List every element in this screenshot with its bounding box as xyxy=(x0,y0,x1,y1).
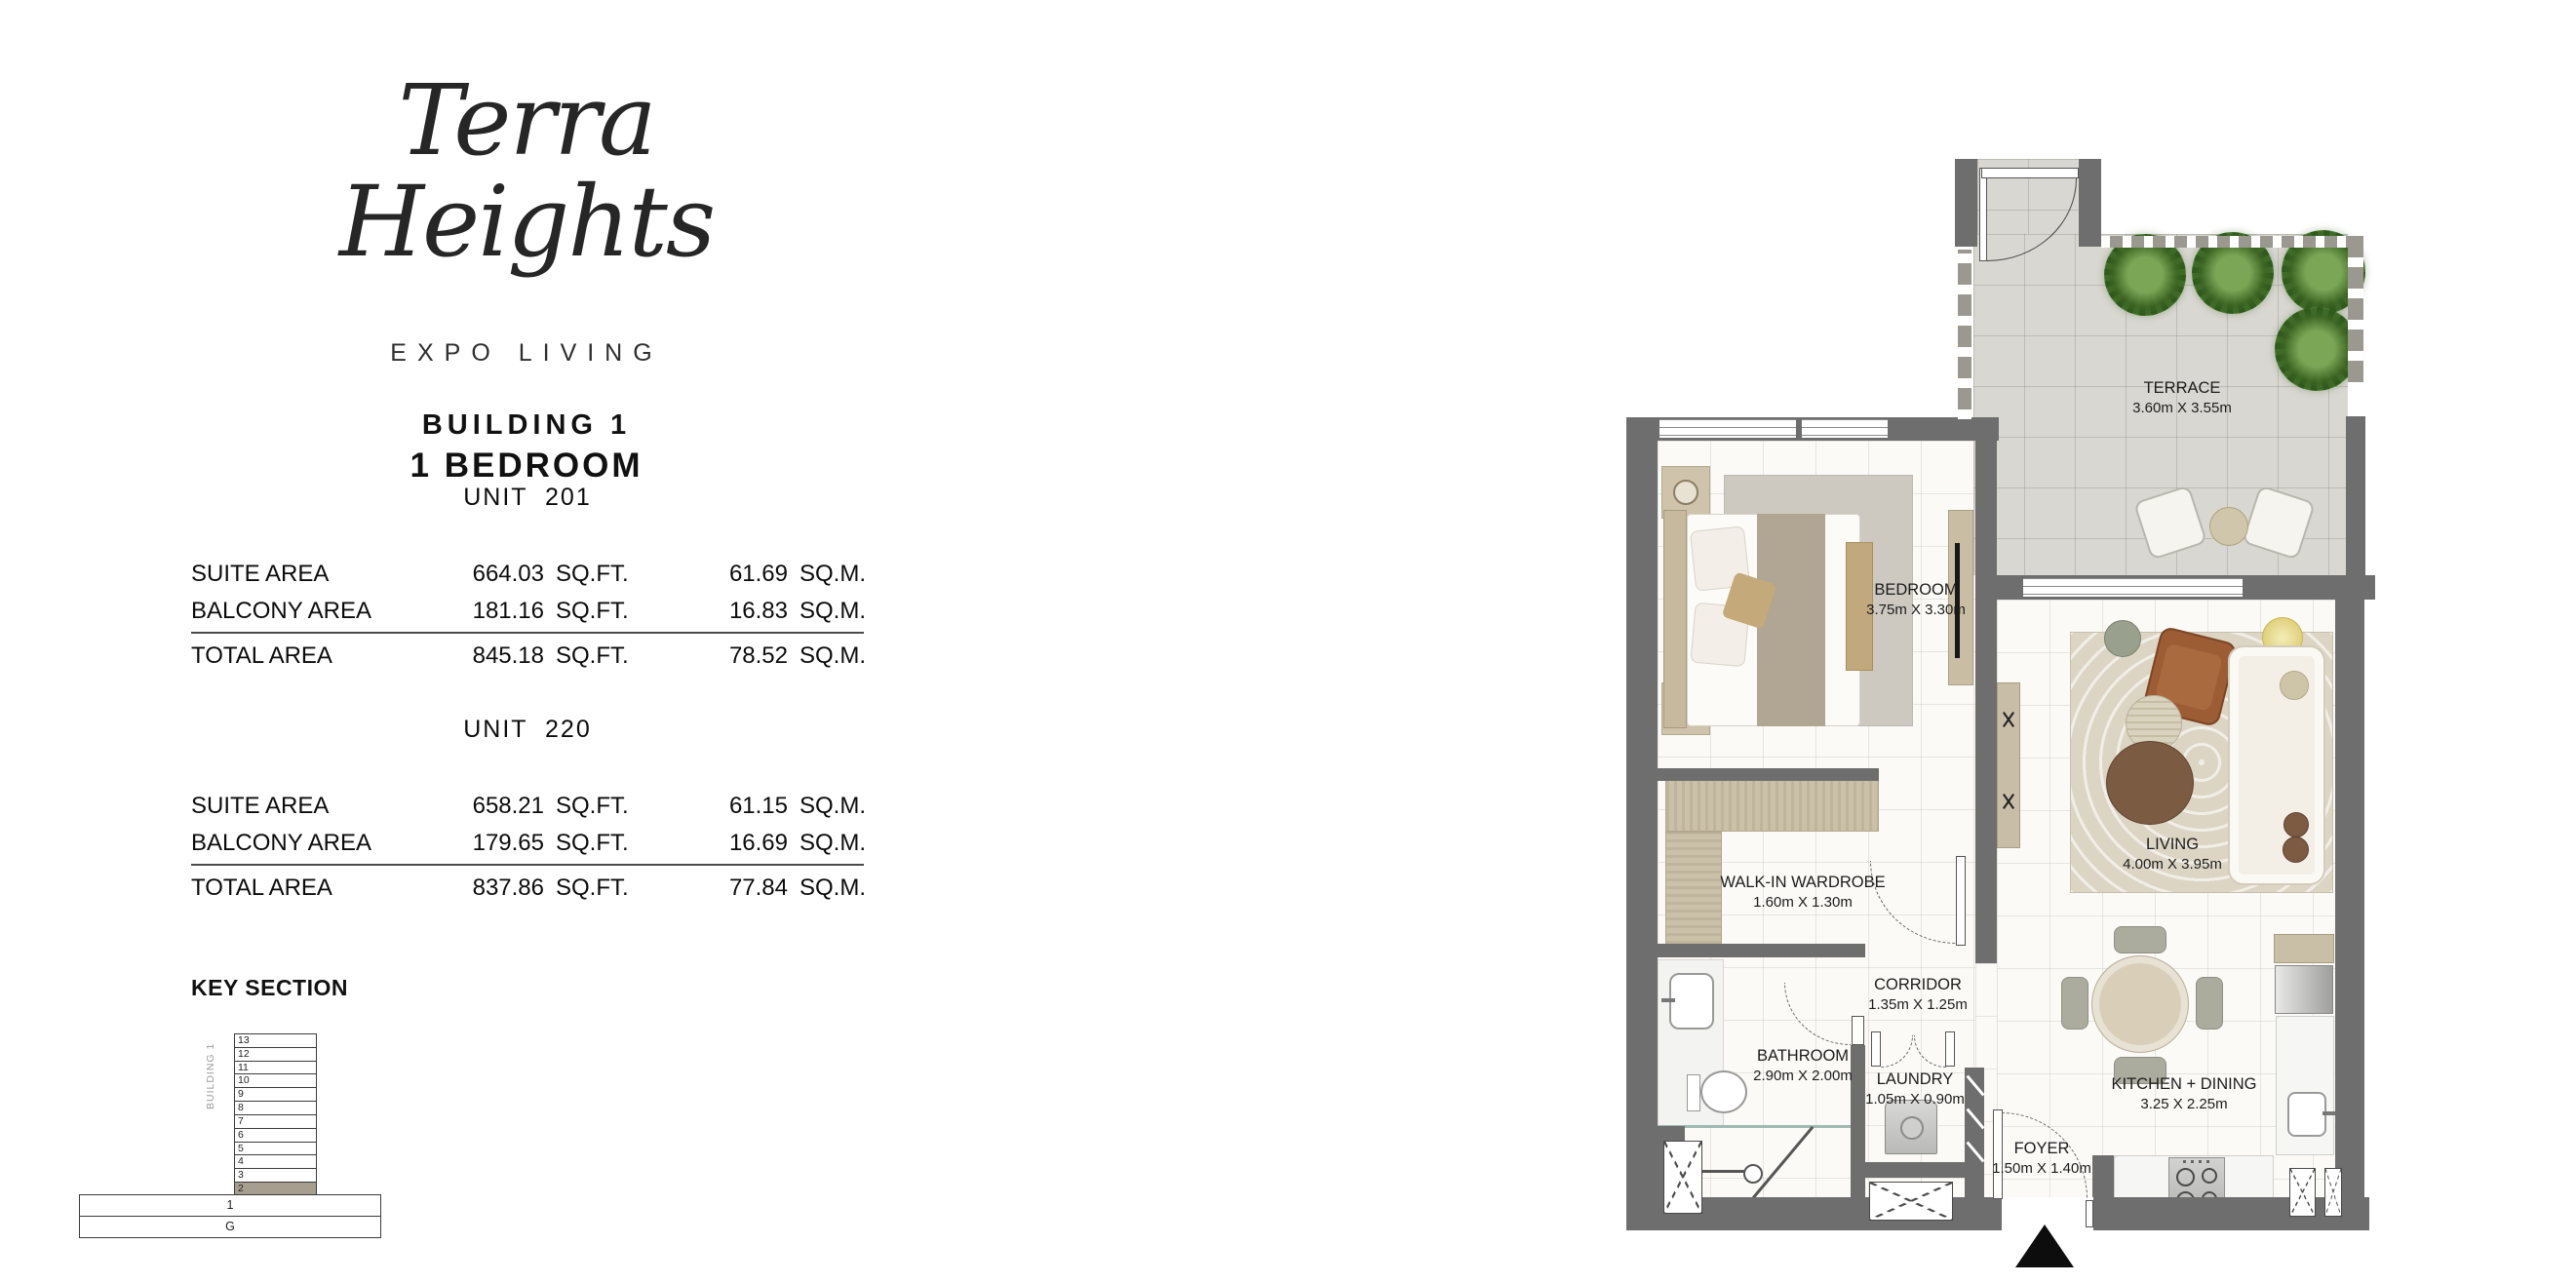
entrance-arrow-icon xyxy=(2015,1225,2074,1267)
terrace-trellis xyxy=(1958,250,1971,419)
fridge xyxy=(2275,965,2333,1014)
wardrobe-counter xyxy=(1665,780,1879,832)
door-frame xyxy=(1979,168,1987,261)
terrace-door-leaf xyxy=(1981,168,2079,178)
room-label-bathroom: BATHROOM 2.90m X 2.00m xyxy=(1753,1046,1853,1086)
bathroom-sink xyxy=(1669,973,1714,1030)
floor-plan: TERRACE 3.60m X 3.55m BEDROOM 3.75m X 3.… xyxy=(0,0,2576,1283)
wall-segment xyxy=(2079,159,2101,247)
wall-segment xyxy=(2092,1155,2114,1230)
dining-chair xyxy=(2196,977,2223,1030)
toilet xyxy=(1700,1070,1747,1113)
plant-icon xyxy=(2275,307,2359,391)
coffee-table-wood xyxy=(2106,741,2194,825)
pouf xyxy=(2283,836,2309,863)
wall-segment xyxy=(1658,768,1879,781)
lamp-icon xyxy=(1673,480,1698,505)
shaft xyxy=(2324,1168,2342,1217)
side-table xyxy=(2104,620,2141,657)
wall-segment xyxy=(1975,441,1997,963)
dining-chair xyxy=(2061,977,2088,1030)
room-label-living: LIVING 4.00m X 3.95m xyxy=(2123,835,2222,875)
shower-arm xyxy=(1702,1170,1745,1173)
kitchen-sink xyxy=(2287,1092,2326,1137)
shower-glass xyxy=(1658,1125,1851,1128)
terrace-table xyxy=(2209,507,2248,546)
window xyxy=(2023,578,2243,597)
dining-table xyxy=(2091,955,2189,1053)
wardrobe-door-leaf xyxy=(1956,856,1966,946)
wall-segment xyxy=(1626,417,1658,1224)
shower-head-icon xyxy=(1743,1164,1763,1184)
sideboard xyxy=(1997,682,2020,848)
door-frame xyxy=(1852,1016,1864,1045)
door-frame xyxy=(1945,1031,1955,1067)
terrace-trellis xyxy=(2348,236,2363,392)
washer-drum-icon xyxy=(1900,1116,1924,1140)
door-frame xyxy=(2086,1200,2093,1227)
shaft xyxy=(1663,1141,1702,1214)
wall-segment xyxy=(2346,416,2365,580)
room-label-laundry: LAUNDRY 1.05m X 0.90m xyxy=(1865,1069,1965,1109)
kitchen-cabinet xyxy=(2274,934,2334,963)
sofa-cushion xyxy=(2280,671,2309,700)
toilet-tank xyxy=(1687,1074,1700,1111)
shaft xyxy=(1869,1182,1953,1221)
shaft xyxy=(2289,1168,2316,1217)
bed-headboard xyxy=(1663,510,1687,728)
room-label-terrace: TERRACE 3.60m X 3.55m xyxy=(2132,378,2232,418)
wall-segment xyxy=(1865,1162,1984,1178)
pouf xyxy=(2283,812,2309,837)
door-frame xyxy=(1871,1031,1881,1067)
wardrobe-counter xyxy=(1665,832,1722,945)
wall-segment xyxy=(1626,1197,2369,1230)
room-label-wardrobe: WALK-IN WARDROBE 1.60m X 1.30m xyxy=(1720,873,1885,913)
stove-knobs xyxy=(2183,1160,2212,1163)
window xyxy=(1659,419,1796,438)
wall-segment xyxy=(2335,600,2364,1230)
window xyxy=(1802,419,1888,438)
faucet-icon xyxy=(1661,998,1675,1002)
terrace-trellis xyxy=(2101,236,2367,248)
room-label-bedroom: BEDROOM 3.75m X 3.30m xyxy=(1866,580,1966,620)
dining-chair xyxy=(2114,926,2166,953)
wall-segment xyxy=(1851,1045,1865,1197)
wall-segment xyxy=(1658,944,1865,957)
room-label-corridor: CORRIDOR 1.35m X 1.25m xyxy=(1868,975,1968,1015)
sofa xyxy=(2228,645,2325,885)
wall-segment xyxy=(1955,159,1977,247)
bed-blanket xyxy=(1757,514,1825,726)
room-label-kitchen: KITCHEN + DINING 3.25 X 2.25m xyxy=(2112,1074,2257,1114)
room-label-foyer: FOYER 1.50m X 1.40m xyxy=(1992,1139,2091,1179)
